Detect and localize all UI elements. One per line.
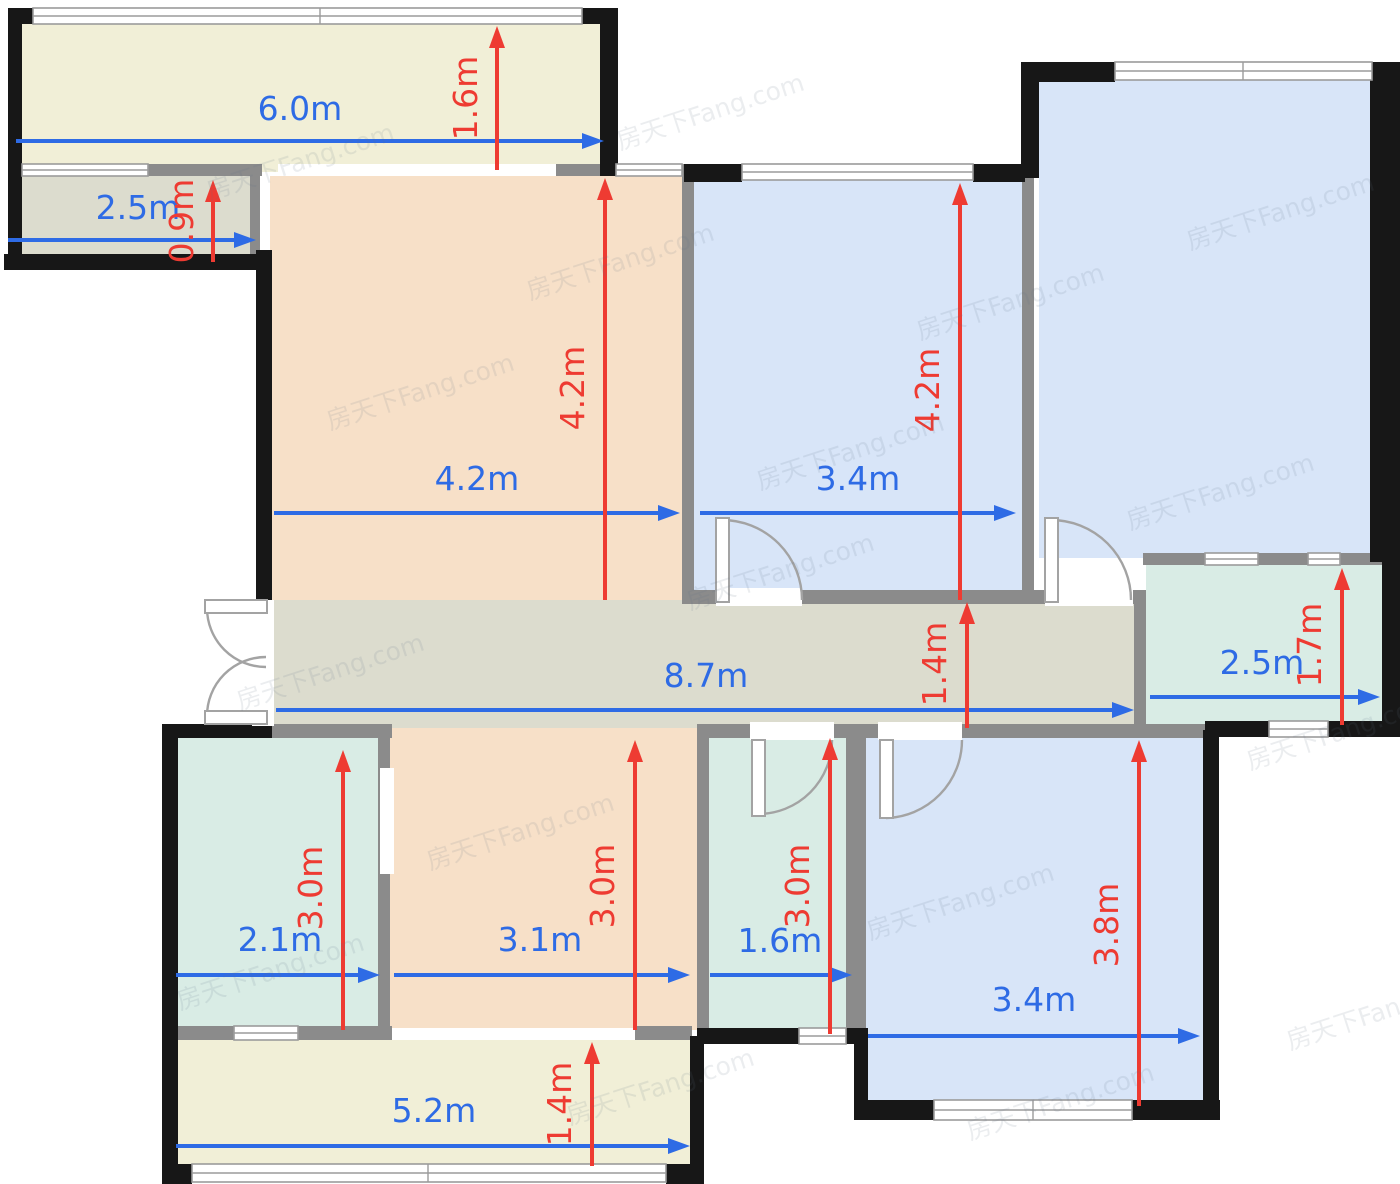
floor-plan-canvas: 6.0m2.5m4.2m3.4m8.7m2.5m2.1m3.1m1.6m3.4m… [0,0,1400,1184]
wall-partition [1143,553,1382,565]
wall-exterior [1021,62,1039,178]
watermark: 房天下Fang.com [1283,968,1400,1056]
wall-partition [1022,176,1034,604]
wall-opening [750,722,834,740]
wall-exterior [854,1100,938,1120]
door-bedroom-large-leaf-icon [1045,518,1058,602]
door-bathroom-middle-leaf-icon [752,740,765,816]
wall-partition [270,724,392,738]
dim-label: 1.7m [1290,603,1329,688]
dim-label: 4.2m [435,459,520,498]
room-dining [390,728,698,1030]
wall-exterior [256,250,272,602]
door-bedroom-bottom-leaf-icon [880,740,893,818]
dim-label: 8.7m [664,656,749,695]
wall-exterior [4,254,272,270]
dim-label: 6.0m [258,89,343,128]
wall-partition [635,1026,692,1040]
wall-exterior [1203,730,1219,1120]
wall-opening [878,722,962,740]
wall-opening [392,1028,635,1040]
wall-exterior [162,724,178,1184]
wall-exterior [1370,62,1400,562]
dim-label: 3.8m [1087,883,1126,968]
dim-label: 3.0m [291,846,330,931]
wall-partition [697,724,709,1042]
dim-label: 4.2m [553,346,592,431]
wall-exterior [600,10,618,176]
wall-exterior [684,164,742,182]
wall-partition [1134,590,1146,732]
wall-partition [554,164,604,176]
wall-partition [846,724,866,1040]
room-living-room [270,176,686,602]
entry-door-upper-leaf-icon [205,600,267,613]
dim-label: 3.0m [778,844,817,929]
wall-exterior [162,1164,192,1184]
wall-exterior [973,164,1025,182]
wall-opening [380,768,394,874]
floor-plan-svg: 6.0m2.5m4.2m3.4m8.7m2.5m2.1m3.1m1.6m3.4m… [0,0,1400,1184]
dim-label: 1.6m [446,56,485,141]
dim-label: 0.9m [162,179,201,264]
dim-label: 5.2m [392,1091,477,1130]
dim-label: 1.4m [915,622,954,707]
dim-label: 3.1m [498,920,583,959]
entry-door-lower-leaf-icon [205,711,267,724]
wall-partition [176,1026,234,1040]
wall-exterior [1205,721,1269,737]
wall-exterior [162,724,272,738]
watermark: 房天下Fang.com [613,68,808,156]
dim-label: 3.4m [992,980,1077,1019]
dim-label: 3.0m [583,844,622,929]
wall-exterior [697,1028,799,1044]
